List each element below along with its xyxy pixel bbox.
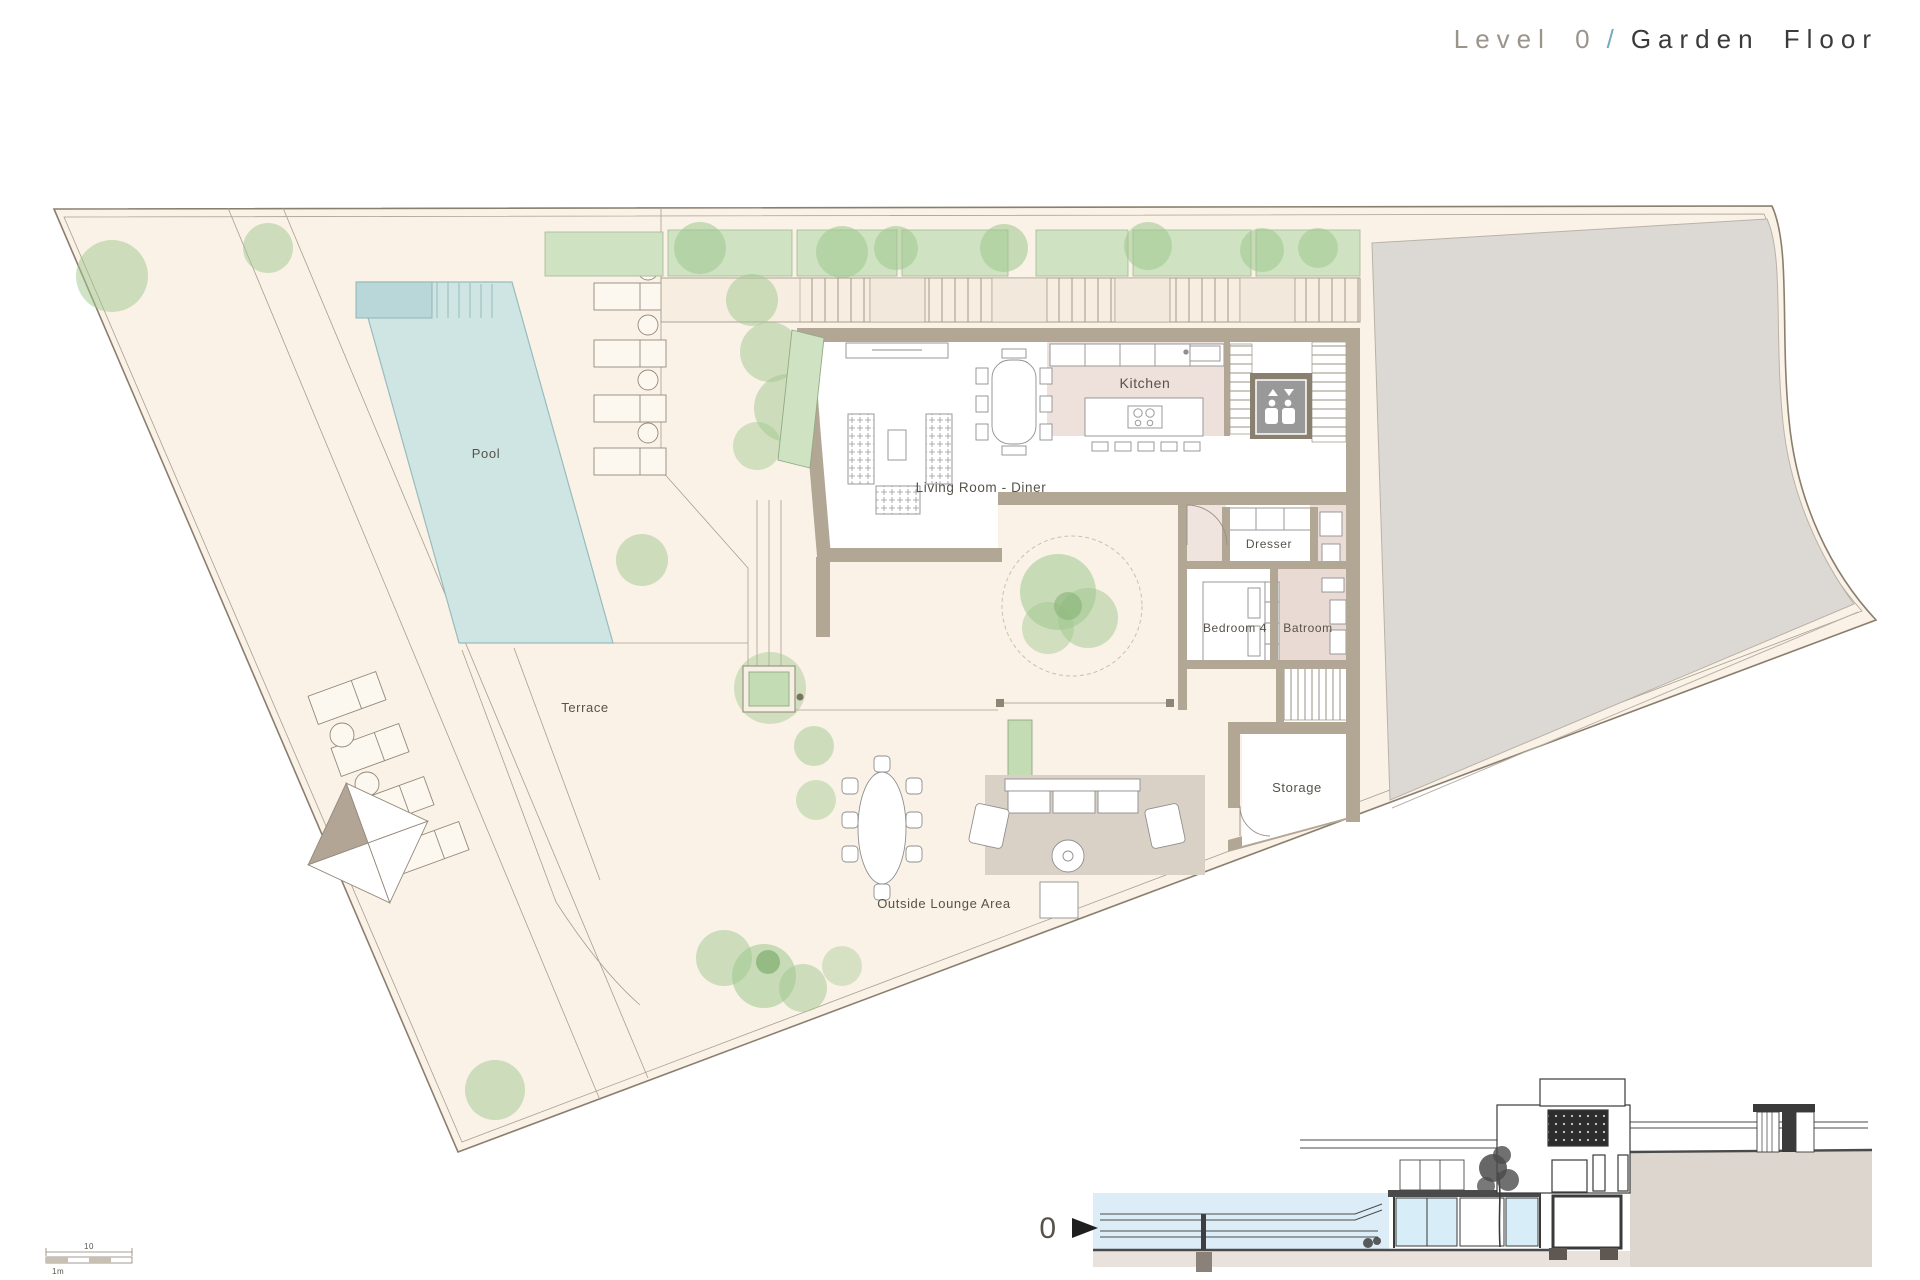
lounge-chair (1040, 882, 1078, 918)
sofa-set (968, 775, 1205, 875)
level-marker-label: 0 (1039, 1212, 1056, 1245)
pool-label: Pool (472, 446, 500, 461)
dining-table-indoor (992, 360, 1036, 444)
kitchen-sink (1190, 346, 1220, 361)
floor-plan-svg: Pool Terrace Living Room - Diner Kitchen… (0, 0, 1920, 1280)
section-basement (1553, 1196, 1621, 1248)
storage-label: Storage (1272, 780, 1322, 795)
section-roof-structure (1753, 1104, 1815, 1152)
section-garden-floor (1394, 1192, 1540, 1248)
living-room-label: Living Room - Diner (916, 480, 1047, 495)
section-screen-panel (1548, 1110, 1608, 1146)
bathroom-label: Batroom (1283, 621, 1333, 635)
section-drawing: 0 (1039, 1079, 1872, 1272)
scale-length-label: 10 (84, 1242, 94, 1251)
elevator (1250, 373, 1312, 439)
bedroom4-label: Bedroom 4 (1203, 621, 1267, 635)
terrace-label: Terrace (561, 700, 609, 715)
section-garden-backdrop (1093, 1193, 1389, 1250)
outside-lounge-label: Outside Lounge Area (877, 896, 1011, 911)
terrace-planter (743, 666, 804, 712)
stairs-terrace (1283, 668, 1347, 720)
dresser-label: Dresser (1246, 537, 1292, 551)
section-level-marker: 0 (1039, 1212, 1098, 1245)
scale-bar: 10 1m (46, 1242, 132, 1276)
stairs-main (1312, 342, 1346, 442)
section-ground-mass (1630, 1150, 1872, 1267)
pool-spa (356, 282, 432, 318)
scale-unit-label: 1m (52, 1267, 64, 1276)
stairs-secondary (1230, 344, 1252, 434)
planter-courtyard (1008, 720, 1032, 782)
floor-plan-page: Level 0/Garden Floor (0, 0, 1920, 1280)
kitchen-label: Kitchen (1120, 375, 1171, 391)
